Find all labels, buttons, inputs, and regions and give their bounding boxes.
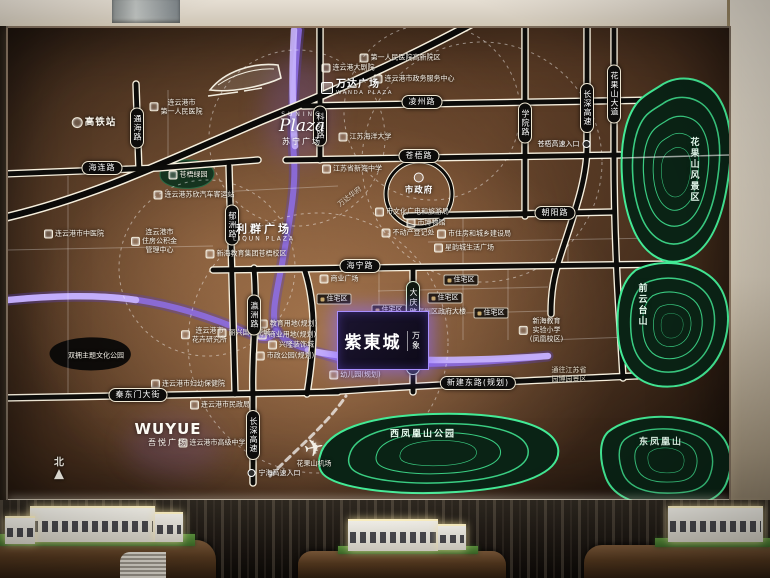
model-building: [30, 506, 155, 542]
model-shelf: [0, 500, 770, 578]
suning-en: SUNING: [279, 111, 325, 118]
north-arrow-icon: ▲: [54, 469, 64, 481]
wuyue-plaza-logo: WUYUE 吾悦广场: [134, 422, 201, 448]
hsr-train-icon: [204, 56, 290, 102]
suning-plaza-logo: SUNING Plaza 苏宁广场: [279, 111, 325, 147]
liqun-cn: 利群广场: [233, 223, 295, 235]
pedestal-center: [298, 551, 506, 578]
wanda-plaza-logo: 万达广场 WANDA PLAZA: [321, 80, 393, 96]
sales-office-map-photo: 高铁站连云港市 第一人民医院第一人民医院高新院区连云港大剧院连云港市政务服务中心…: [0, 0, 770, 578]
project-name: 紫東城: [345, 328, 402, 353]
right-wall: [727, 0, 770, 502]
model-building: [348, 519, 438, 551]
wanda-cn: 万达广场: [336, 80, 393, 90]
city-government-label: 市政府: [405, 173, 434, 196]
government-icon: [414, 173, 424, 183]
huaguoshan-scenic-area: [622, 78, 729, 261]
model-building: [155, 512, 183, 542]
pedestal-right: [584, 545, 770, 578]
qianyuntai-mountain: [618, 263, 728, 387]
wuyue-en: WUYUE: [134, 422, 201, 437]
map-graphics: [8, 28, 729, 502]
model-building: [438, 524, 466, 550]
ceiling-panel: [112, 0, 180, 23]
project-brand: 万象: [407, 331, 422, 351]
model-building: [5, 516, 35, 544]
east-phoenix-mountain: [601, 417, 729, 502]
model-building: [668, 506, 763, 542]
suning-script: Plaza: [279, 118, 325, 135]
illuminated-map-board: 高铁站连云港市 第一人民医院第一人民医院高新院区连云港大剧院连云港市政务服务中心…: [6, 26, 731, 504]
west-phoenix-mountain-park: [319, 414, 559, 493]
project-zidong-block: 紫東城 万象: [337, 311, 429, 370]
liqun-en: LIQUN PLAZA: [233, 236, 295, 243]
compass-north: 北 ▲: [54, 458, 64, 481]
liqun-plaza-logo: 利群广场 LIQUN PLAZA: [233, 223, 295, 242]
wuyue-cn: 吾悦广场: [134, 437, 201, 448]
pedestal-column: [120, 552, 166, 578]
wanda-en: WANDA PLAZA: [336, 90, 393, 96]
wanda-icon: [321, 82, 333, 94]
suning-cn: 苏宁广场: [279, 136, 325, 147]
